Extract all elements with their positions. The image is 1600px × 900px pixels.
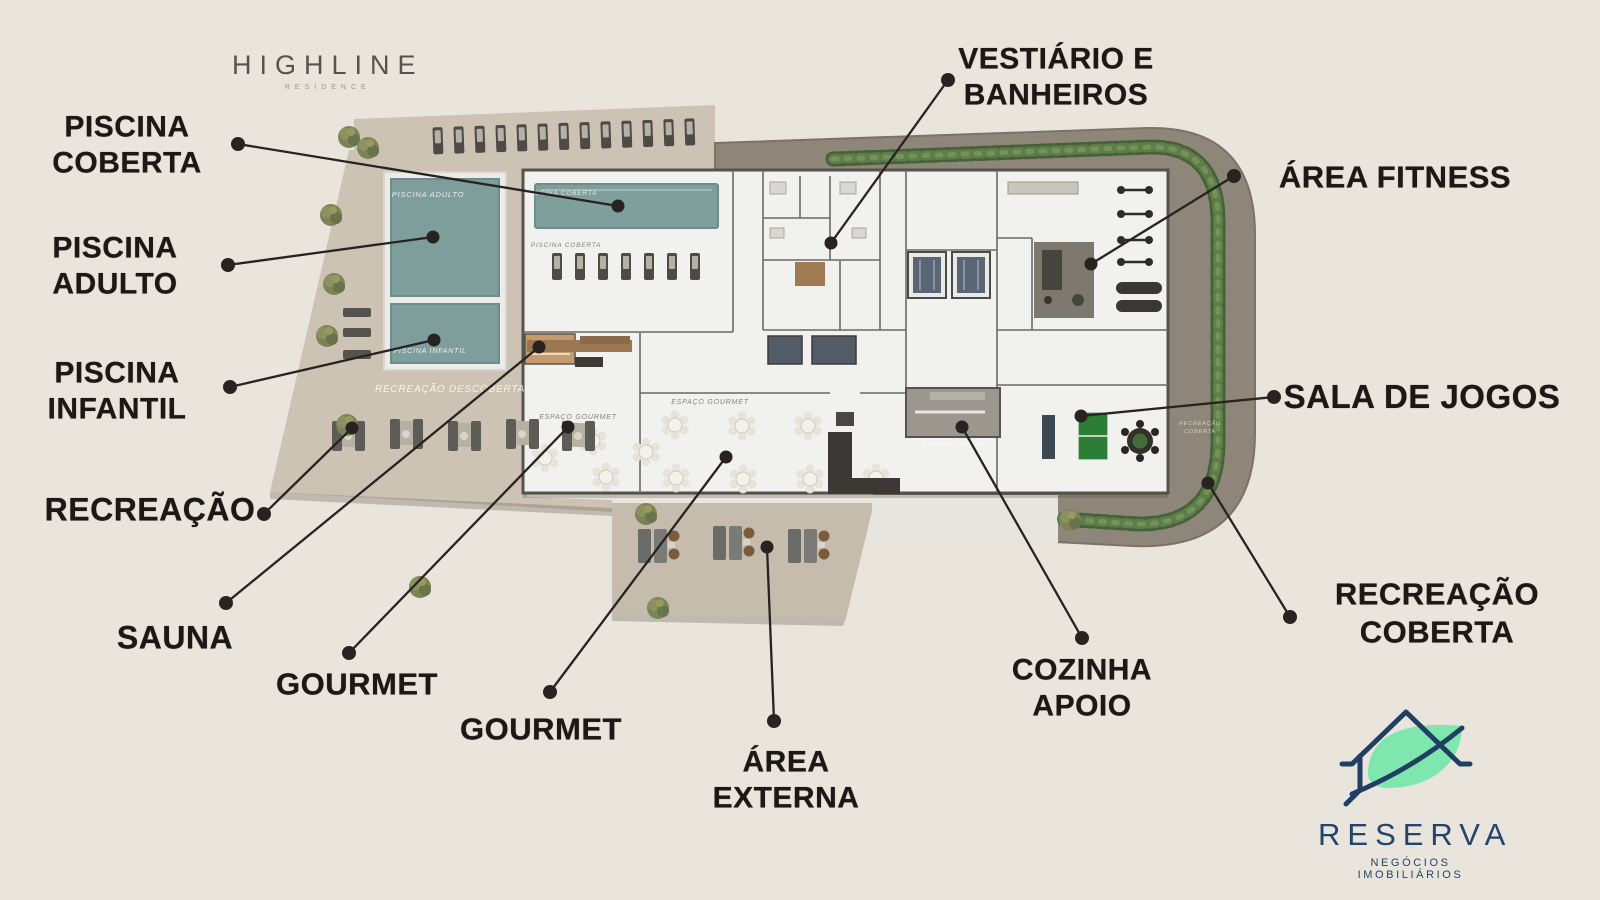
label-sala-de-jogos: SALA DE JOGOS [1284,377,1561,417]
label-recreacao: RECREAÇÃO [45,491,256,530]
cozinha-apoio-room [906,388,1000,437]
walkway [872,495,1058,543]
poolside-furniture [343,308,371,359]
plan-label: PISCINA INFANTIL [393,348,466,355]
building [523,170,1168,498]
label-piscina-infantil: PISCINAINFANTIL [48,356,187,429]
label-gourmet-2: GOURMET [460,710,622,748]
label-piscina-coberta: PISCINACOBERTA [52,110,202,183]
highline-logo-subtitle: RESIDENCE [232,84,424,91]
floorplan-page: PISCINA ADULTOPISCINA INFANTILRECREAÇÃO … [0,0,1600,900]
label-area-fitness: ÁREA FITNESS [1279,158,1511,196]
reserva-logo-text: RESERVA [1318,817,1503,853]
outdoor-pools [384,172,506,370]
label-sauna: SAUNA [117,619,233,658]
plan-label: ESPAÇO GOURMET [671,399,749,406]
label-area-externa: ÁREAEXTERNA [713,745,860,818]
reserva-logo: RESERVA NEGÓCIOS IMOBILIÁRIOS [1318,700,1503,881]
label-cozinha-apoio: COZINHAAPOIO [1012,653,1152,726]
label-vestiario-banheiros: VESTIÁRIO EBANHEIROS [958,42,1154,115]
plan-label: ESPAÇO GOURMET [539,414,617,421]
reserva-logo-subtitle: NEGÓCIOS IMOBILIÁRIOS [1318,857,1503,881]
label-gourmet-1: GOURMET [276,665,438,703]
label-piscina-adulto: PISCINAADULTO [52,231,177,304]
plan-label: COBERTA [1184,429,1216,435]
label-recreacao-coberta: RECREAÇÃOCOBERTA [1335,576,1539,651]
external-furniture [638,526,830,563]
plan-label: RECREAÇÃO DESCOBERTA [375,382,525,395]
reserva-house-leaf-icon [1318,700,1503,810]
plan-label: RECREAÇÃO [1179,420,1221,427]
highline-logo: HIGHLINE RESIDENCE [232,50,424,91]
plan-label: PISCINA COBERTA [531,242,601,249]
highline-logo-text: HIGHLINE [232,50,424,81]
plan-label: PISCINA ADULTO [392,190,464,199]
